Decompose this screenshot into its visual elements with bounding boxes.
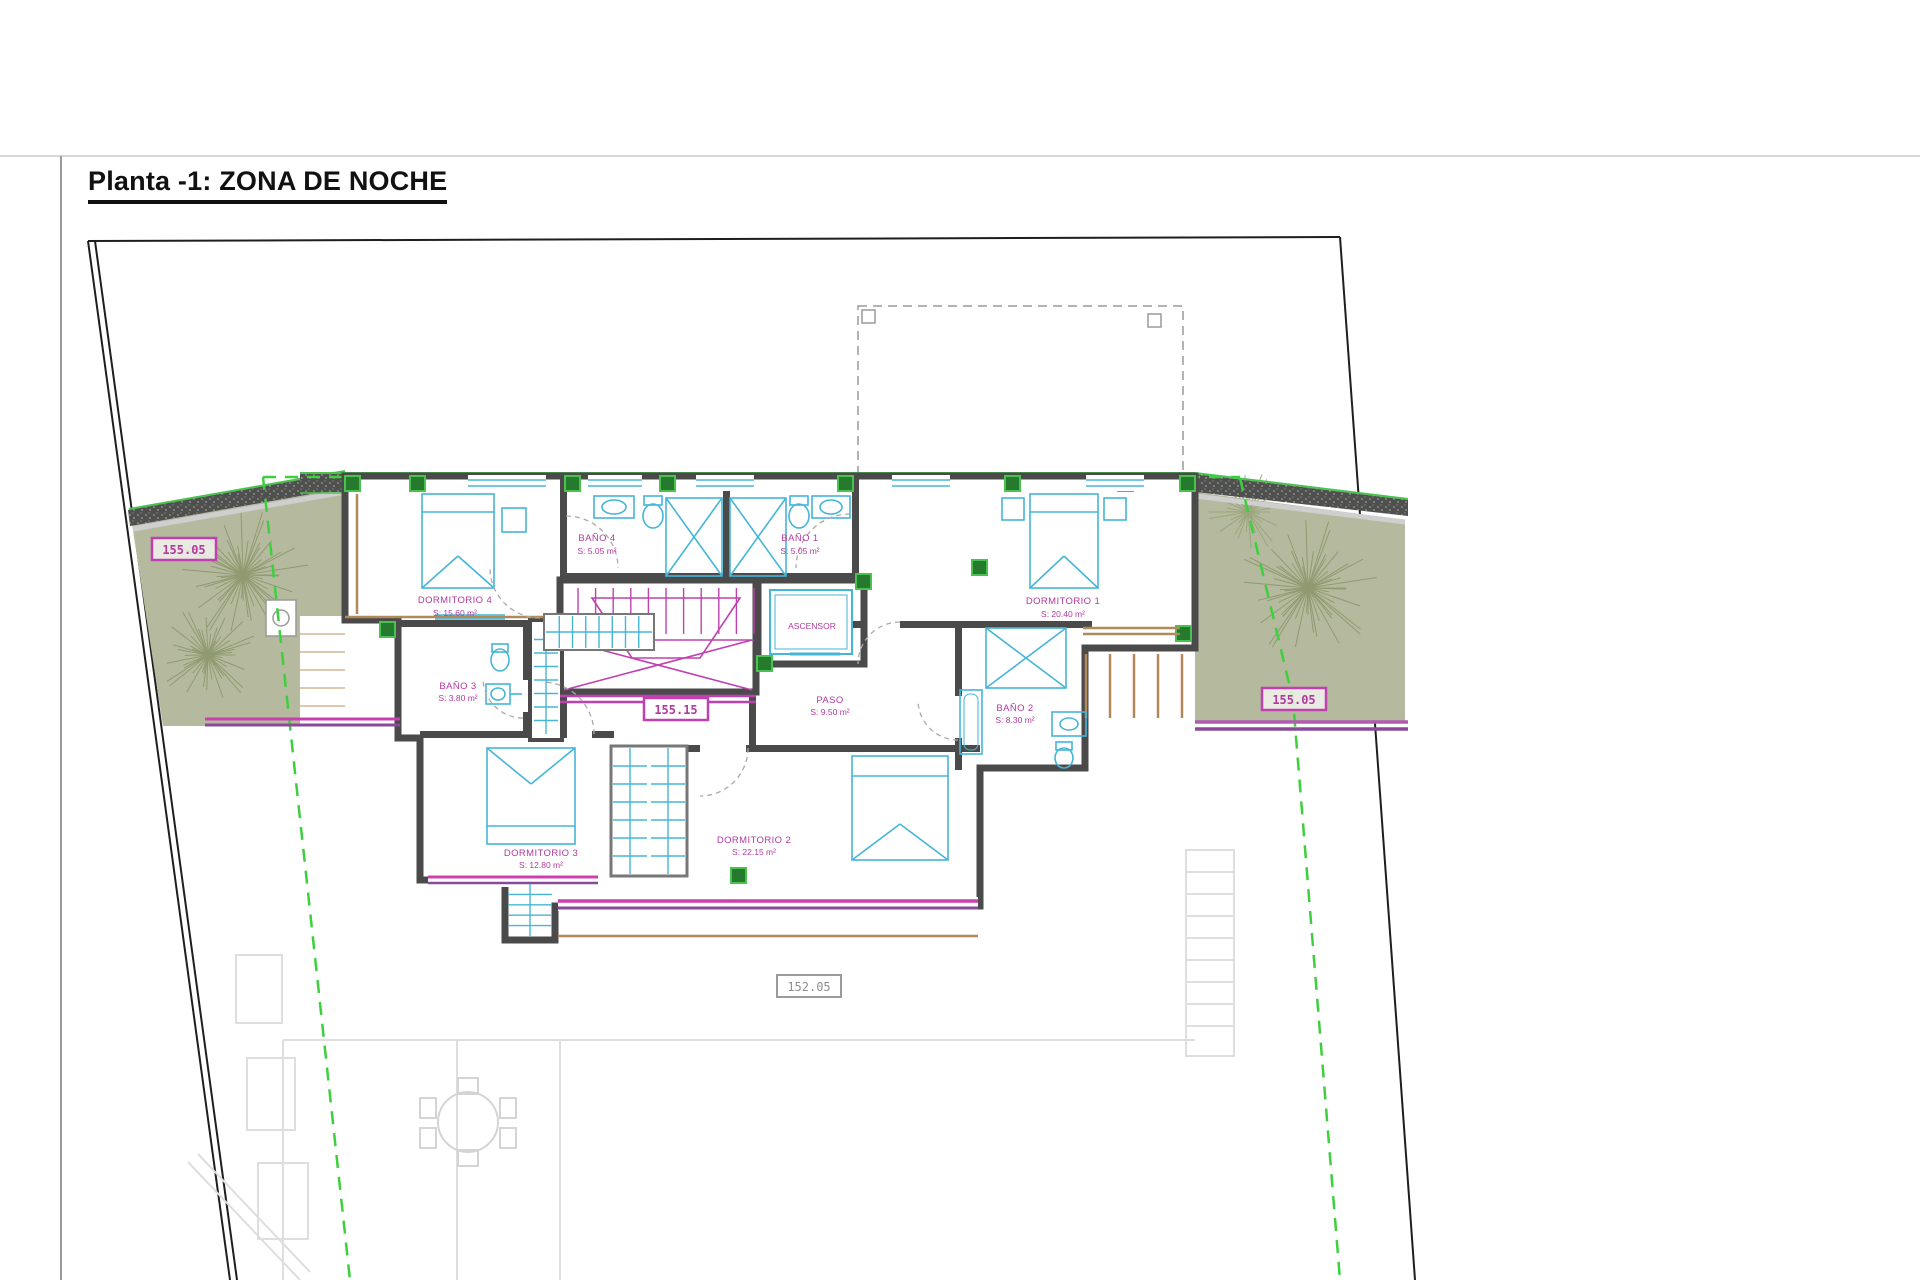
level-value: 155.05 (162, 543, 205, 557)
window-dorm3 (428, 874, 598, 887)
room-label-dormitorio1: DORMITORIO 1 (1026, 596, 1100, 607)
room-area-dormitorio1: S: 20.40 m² (1041, 609, 1085, 619)
level-marker-left: 155.05 (152, 538, 216, 560)
room-area-dormitorio2: S: 22.15 m² (732, 847, 776, 857)
room-area-paso: S: 9.50 m² (810, 707, 849, 717)
level-marker-lower: 152.05 (777, 975, 841, 997)
building-footprint (345, 476, 1195, 940)
level-value: 152.05 (787, 980, 830, 994)
dashed-plot-outline (858, 306, 1183, 478)
room-area-dormitorio3: S: 12.80 m² (519, 860, 563, 870)
window-dorm2 (558, 897, 978, 911)
room-area-dormitorio4: S: 15.60 m² (433, 608, 477, 618)
room-label-bano4: BAÑO 4 (578, 533, 615, 544)
room-label-ascensor: ASCENSOR (788, 621, 836, 631)
lower-floor-outline (188, 850, 1234, 1280)
level-value: 155.05 (1272, 693, 1315, 707)
floor-plan-canvas: 155.05 155.05 155.15 152.05 BAÑO 4 S: 5.… (0, 0, 1920, 1280)
room-label-dormitorio4: DORMITORIO 4 (418, 595, 492, 606)
room-label-bano1: BAÑO 1 (781, 533, 818, 544)
room-label-dormitorio2: DORMITORIO 2 (717, 835, 791, 846)
room-area-bano3: S: 3.80 m² (438, 693, 477, 703)
room-label-bano2: BAÑO 2 (996, 703, 1033, 714)
lower-floor-table (420, 1078, 516, 1166)
room-label-paso: PASO (816, 695, 843, 706)
room-area-bano2: S: 8.30 m² (995, 715, 1034, 725)
room-area-bano1: S: 5.05 m² (780, 546, 819, 556)
room-label-bano3: BAÑO 3 (439, 681, 476, 692)
level-marker-stair: 155.15 (644, 698, 708, 720)
room-area-bano4: S: 5.05 m² (577, 546, 616, 556)
drawing-sheet: Planta -1: ZONA DE NOCHE (0, 0, 1920, 1280)
level-value: 155.15 (654, 703, 697, 717)
room-label-dormitorio3: DORMITORIO 3 (504, 848, 578, 859)
level-marker-right: 155.05 (1262, 688, 1326, 710)
